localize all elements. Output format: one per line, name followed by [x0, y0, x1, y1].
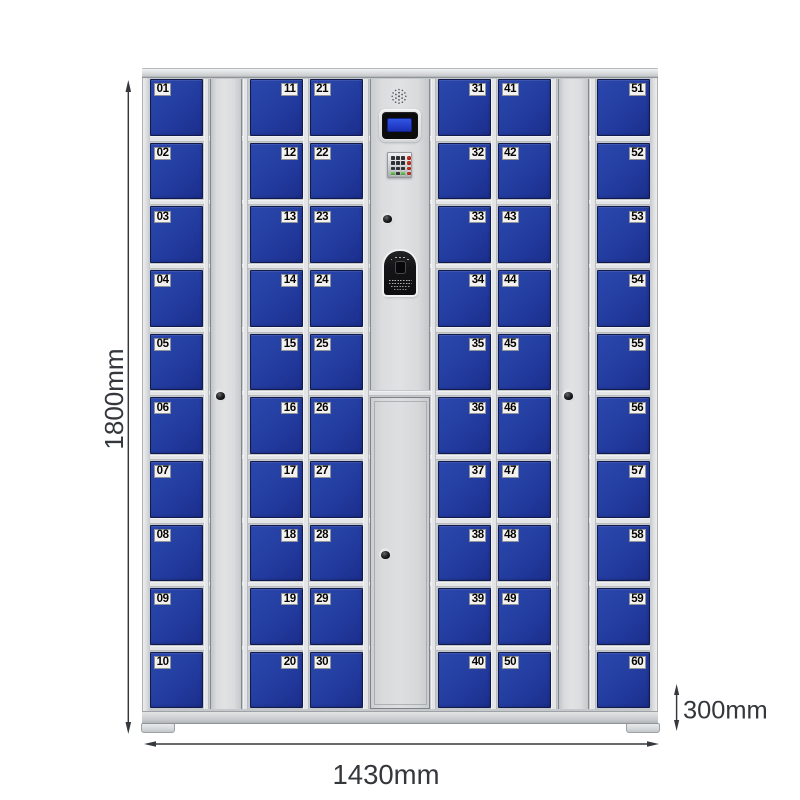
svg-text:1800mm: 1800mm [99, 348, 129, 449]
svg-text:1430mm: 1430mm [333, 759, 440, 790]
svg-text:300mm: 300mm [683, 697, 768, 725]
